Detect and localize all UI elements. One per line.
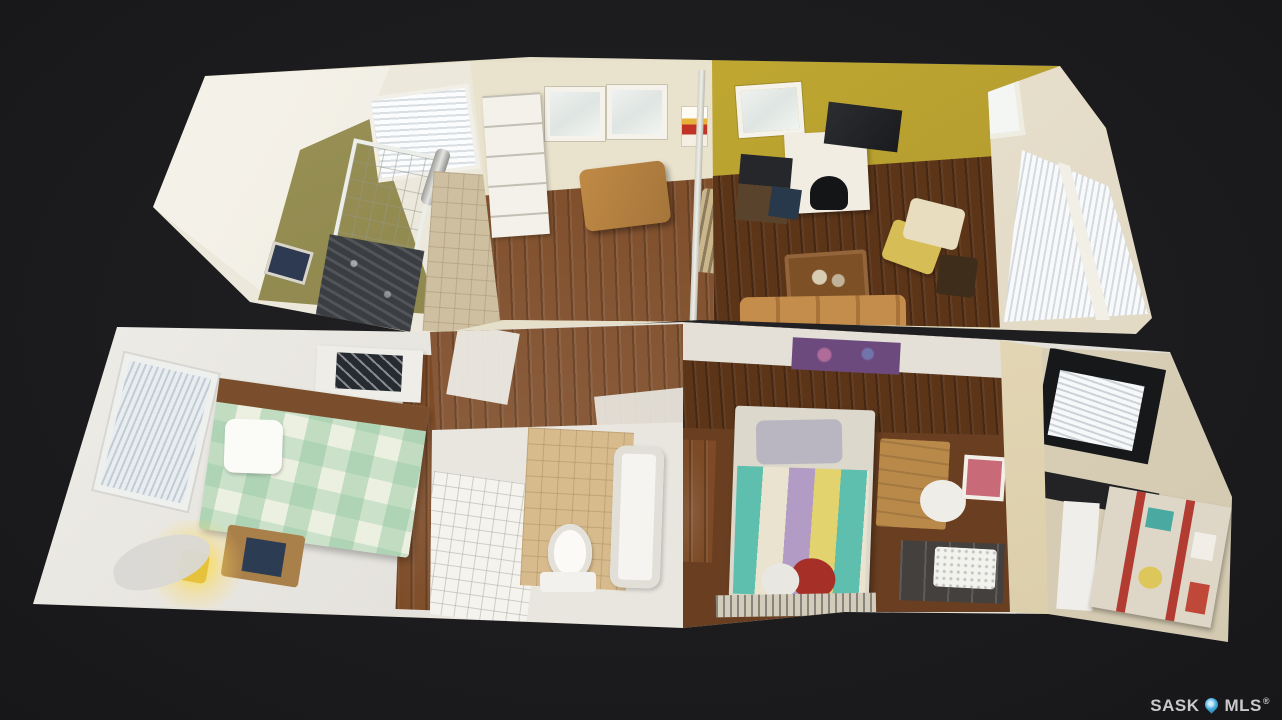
registered-symbol: ®	[1263, 696, 1270, 706]
bedroom2-rug	[716, 593, 876, 618]
bedroom2-bed	[729, 406, 876, 603]
shelf-red-rail-left	[1116, 491, 1146, 613]
fireplace-arch-insert	[810, 176, 848, 210]
office-window-dark-frame	[1032, 348, 1166, 465]
watermark-brand-prefix: SASK	[1150, 696, 1199, 716]
office-shelf	[1088, 486, 1231, 628]
shelf-item-white	[1190, 532, 1216, 561]
fireplace-hood	[824, 102, 903, 153]
bedroom2-tapestry	[791, 337, 901, 375]
bedroom1-tv	[335, 352, 403, 391]
storage-bin	[768, 186, 802, 220]
bedroom2-pillow	[756, 419, 843, 464]
laundry-basket	[933, 546, 997, 589]
dining-window-left	[545, 87, 605, 141]
living-window	[735, 82, 804, 138]
watermark-brand-suffix: MLS®	[1224, 696, 1270, 716]
bathroom-toilet-tank	[540, 572, 596, 592]
dining-table	[579, 160, 672, 232]
dollhouse-3d-view[interactable]: SASK MLS®	[0, 0, 1282, 720]
side-table-dark	[936, 254, 979, 298]
office-window-blinds	[1048, 370, 1145, 451]
hallway-trim-left	[446, 323, 520, 405]
shelf-item-yellow	[1137, 565, 1164, 591]
bathroom-tub	[610, 445, 665, 589]
saskmls-watermark: SASK MLS®	[1150, 696, 1270, 716]
shelf-item-red	[1185, 582, 1210, 615]
bedroom1-pillow	[223, 418, 283, 474]
shelf-item-teal	[1145, 507, 1174, 531]
map-pin-icon	[1203, 695, 1221, 713]
dining-hutch-shelf	[482, 92, 550, 238]
bedroom1-window	[93, 353, 218, 511]
bedroom2-picture-frame	[962, 455, 1007, 502]
dining-window-right	[607, 85, 667, 139]
kitchen-stove	[316, 234, 425, 331]
